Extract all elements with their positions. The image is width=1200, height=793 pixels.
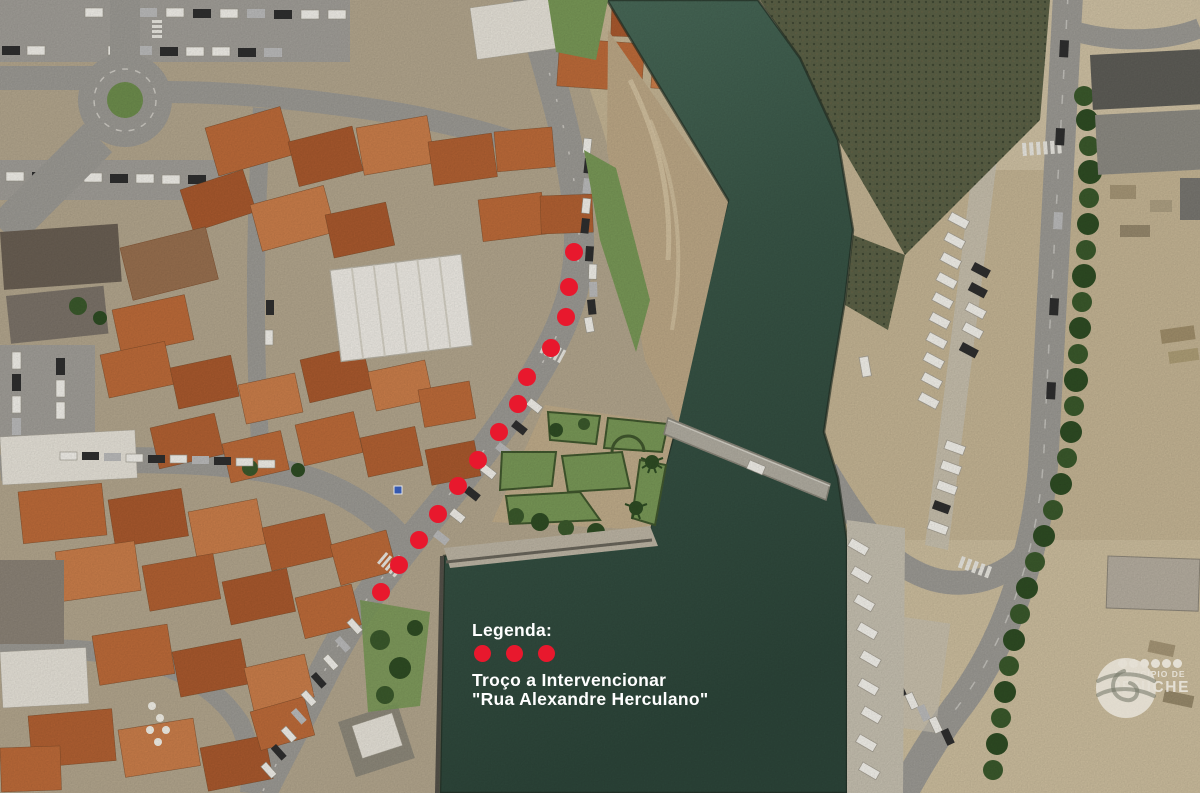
- map-legend: Legenda: Troço a Intervencionar "Rua Ale…: [472, 620, 708, 709]
- municipality-watermark: MUNICÍPIO DE PENICHE: [1094, 655, 1200, 697]
- legend-line-1: Troço a Intervencionar: [472, 671, 708, 690]
- legend-dots: [474, 645, 708, 662]
- legend-title: Legenda:: [472, 620, 708, 641]
- peniche-wave-icon: [1094, 655, 1158, 721]
- legend-line-2: "Rua Alexandre Herculano": [472, 690, 708, 709]
- aerial-map: Legenda: Troço a Intervencionar "Rua Ale…: [0, 0, 1200, 793]
